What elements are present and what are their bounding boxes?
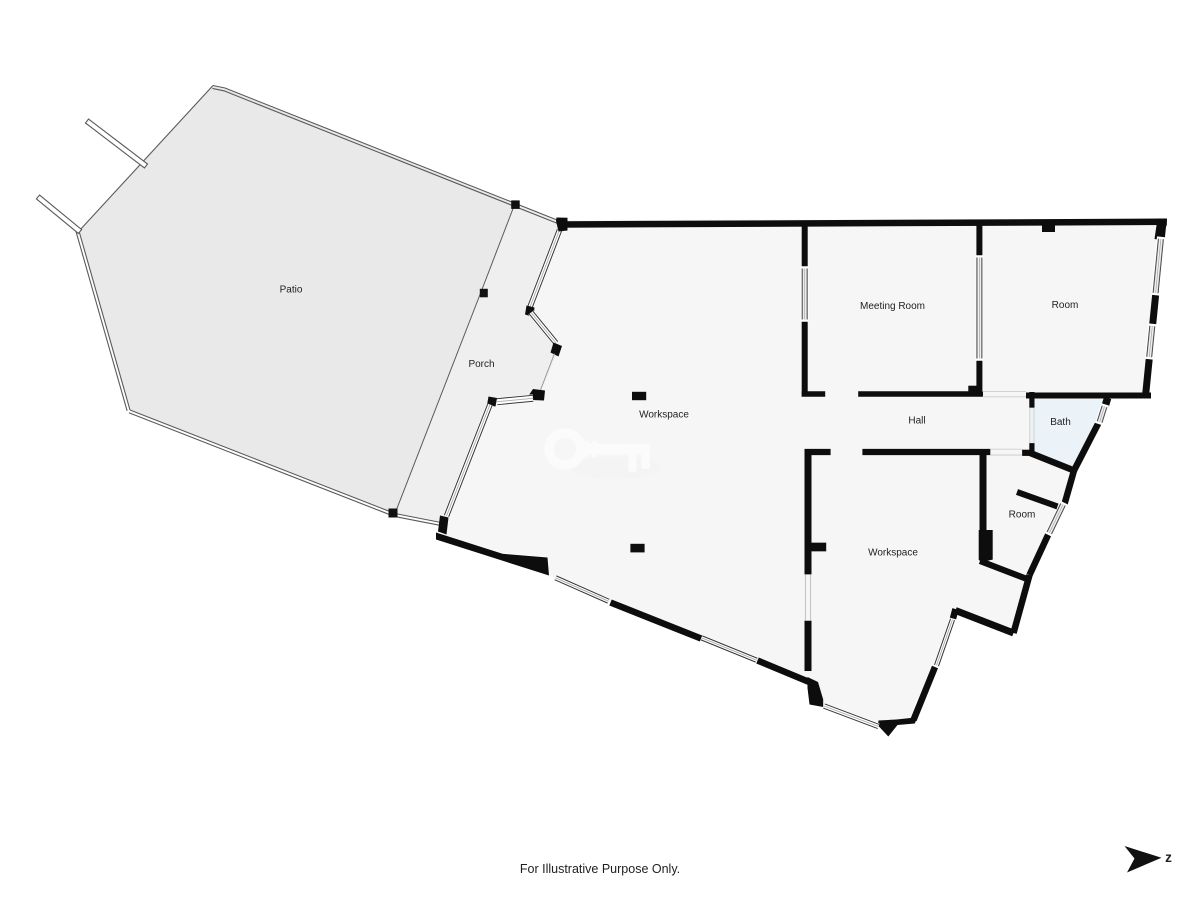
svg-text:Hall: Hall bbox=[908, 416, 925, 427]
svg-text:Workspace: Workspace bbox=[639, 410, 689, 421]
svg-text:Room: Room bbox=[1009, 510, 1036, 521]
svg-text:For Illustrative Purpose Only.: For Illustrative Purpose Only. bbox=[520, 862, 680, 876]
svg-text:Bath: Bath bbox=[1050, 417, 1071, 428]
svg-text:Patio: Patio bbox=[280, 285, 303, 296]
svg-text:Workspace: Workspace bbox=[868, 548, 918, 559]
svg-text:Porch: Porch bbox=[468, 359, 494, 370]
svg-text:Meeting Room: Meeting Room bbox=[860, 301, 925, 312]
svg-text:Room: Room bbox=[1052, 300, 1079, 311]
svg-text:z: z bbox=[1165, 850, 1172, 865]
